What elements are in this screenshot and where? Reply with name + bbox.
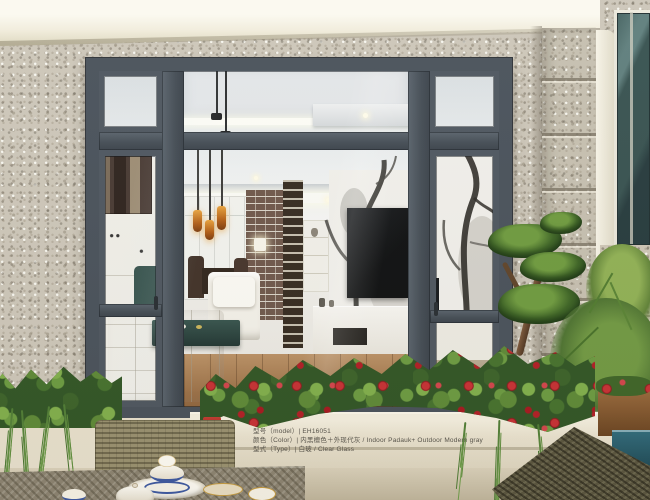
gold-plate [203,483,243,496]
neighbor-window-mullion [630,12,633,244]
bowl [150,465,184,482]
window-handle-right [434,302,438,316]
sash-rail-right [430,310,499,323]
planter-flowers [596,376,650,396]
teacup-top [158,455,176,467]
casement-sash-left [99,150,162,407]
sash-rail-left [99,304,162,317]
teapot [116,486,154,500]
caption-line-model: 型号（model）| EH16051 [253,427,331,436]
window-handle-left [154,296,158,310]
transom-bar [99,132,499,150]
teapot-lid [132,483,138,488]
teacup-right [248,487,276,500]
product-caption: 型号（model）| EH16051 颜色（Color）| 内黑檀色＋外现代灰 … [253,427,453,457]
transom-sash-left [99,71,162,132]
mullion-left [162,71,184,407]
transom-sash-right [430,71,499,132]
product-photo-scene: 型号（model）| EH16051 颜色（Color）| 内黑檀色＋外现代灰 … [0,0,650,500]
caption-line-type: 型式（Type）| 白玻 / Clear Glass [253,445,354,454]
teacup-left [62,489,86,500]
mullion-right [408,71,430,407]
caption-line-color: 颜色（Color）| 内黑檀色＋外现代灰 / Indoor Padauk+ Ou… [253,436,483,445]
